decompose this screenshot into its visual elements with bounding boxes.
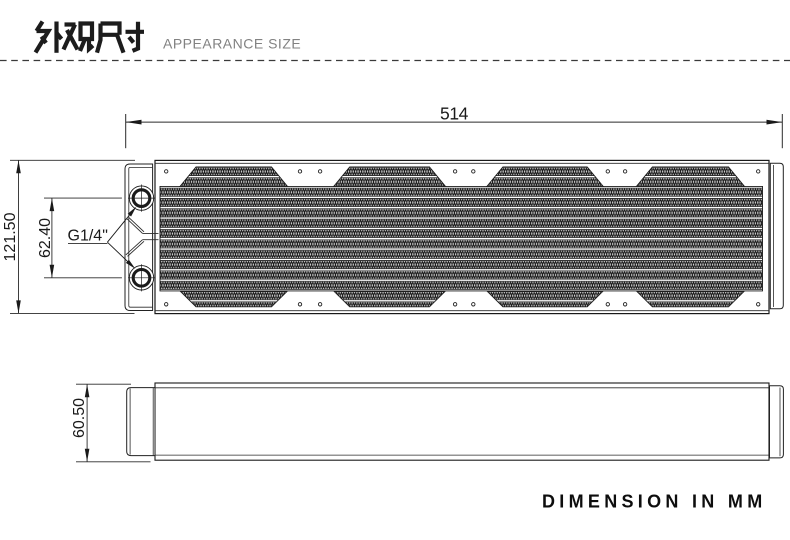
svg-text:514: 514 [440, 104, 469, 124]
svg-text:60.50: 60.50 [71, 398, 88, 438]
svg-text:121.50: 121.50 [2, 212, 19, 261]
svg-text:62.40: 62.40 [37, 218, 54, 258]
svg-text:DIMENSION IN MM: DIMENSION IN MM [542, 492, 767, 512]
svg-text:APPEARANCE SIZE: APPEARANCE SIZE [163, 36, 301, 52]
svg-text:G1/4": G1/4" [68, 228, 108, 245]
